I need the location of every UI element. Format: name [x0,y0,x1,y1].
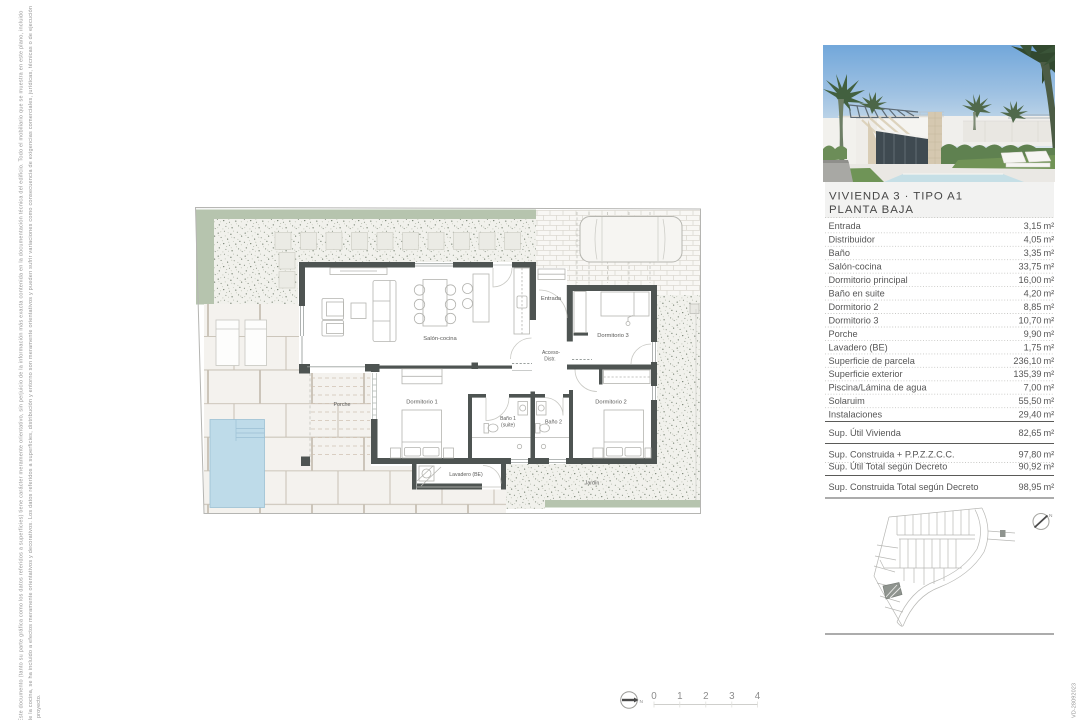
svg-text:m²: m² [1044,450,1055,460]
svg-text:de la cocina, se ha incluido a: de la cocina, se ha incluido a efectos m… [28,6,34,720]
svg-text:N: N [640,699,644,705]
svg-text:3,15: 3,15 [1024,221,1042,231]
svg-text:m²: m² [1044,315,1055,325]
svg-text:m²: m² [1044,289,1055,299]
svg-text:VD-28092023: VD-28092023 [1072,683,1078,718]
svg-text:Este documento (tanto su parte: Este documento (tanto su parte gráfica c… [19,11,25,720]
svg-text:Salón-cocina: Salón-cocina [423,336,457,342]
svg-text:Superficie de parcela: Superficie de parcela [829,356,916,366]
svg-text:Acceso-: Acceso- [542,350,560,356]
svg-text:0: 0 [651,691,657,702]
svg-text:1: 1 [677,691,682,702]
svg-text:Sup. Útil Total según Decreto: Sup. Útil Total según Decreto [829,462,948,472]
svg-text:Distr.: Distr. [544,357,555,363]
svg-text:Sup. Construida + P.P.Z.Z.C.C.: Sup. Construida + P.P.Z.Z.C.C. [829,450,955,460]
svg-text:7,00: 7,00 [1024,383,1042,393]
svg-text:Dormitorio 3: Dormitorio 3 [829,315,879,325]
svg-text:Salón-cocina: Salón-cocina [829,262,883,272]
svg-text:4: 4 [755,691,761,702]
svg-text:m²: m² [1044,302,1055,312]
svg-text:Solaruim: Solaruim [829,396,866,406]
svg-text:Jardín: Jardín [585,481,600,487]
svg-text:8,85: 8,85 [1024,302,1042,312]
svg-text:m²: m² [1044,428,1055,438]
svg-text:Dormitorio 3: Dormitorio 3 [597,333,629,339]
svg-text:VIVIENDA 3 · TIPO A1: VIVIENDA 3 · TIPO A1 [829,191,963,203]
svg-text:m²: m² [1044,342,1055,352]
svg-text:3: 3 [729,691,735,702]
svg-text:proyecto.: proyecto. [36,694,42,718]
svg-text:Dormitorio 2: Dormitorio 2 [829,302,879,312]
svg-text:Superficie exterior: Superficie exterior [829,369,903,379]
svg-text:m²: m² [1044,248,1055,258]
svg-text:Porche: Porche [333,402,350,408]
svg-text:Entrada: Entrada [829,221,862,231]
svg-text:PLANTA BAJA: PLANTA BAJA [829,204,914,216]
svg-text:m²: m² [1044,369,1055,379]
svg-text:1,75: 1,75 [1024,342,1042,352]
svg-text:Baño en suite: Baño en suite [829,289,885,299]
svg-text:m²: m² [1044,410,1055,420]
svg-text:m²: m² [1044,396,1055,406]
svg-text:236,10: 236,10 [1013,356,1041,366]
svg-text:Dormitorio principal: Dormitorio principal [829,275,908,285]
svg-text:4,20: 4,20 [1024,289,1042,299]
svg-text:m²: m² [1044,356,1055,366]
svg-text:Instalaciones: Instalaciones [829,410,883,420]
svg-text:Lavadero (BE): Lavadero (BE) [829,342,888,352]
svg-text:135,39: 135,39 [1013,369,1041,379]
svg-text:9,90: 9,90 [1024,329,1042,339]
svg-text:m²: m² [1044,329,1055,339]
svg-text:m²: m² [1044,275,1055,285]
svg-text:m²: m² [1044,235,1055,245]
svg-text:Distribuidor: Distribuidor [829,235,875,245]
svg-text:Baño: Baño [829,248,850,258]
svg-text:Entrada: Entrada [541,296,562,302]
svg-text:m²: m² [1044,221,1055,231]
svg-text:Sup. Construida Total según De: Sup. Construida Total según Decreto [829,482,979,492]
svg-text:N: N [1049,513,1053,519]
svg-text:m²: m² [1044,383,1055,393]
svg-text:m²: m² [1044,482,1055,492]
svg-text:3,35: 3,35 [1024,248,1042,258]
svg-text:Sup. Útil Vivienda: Sup. Útil Vivienda [829,428,902,438]
svg-text:97,80: 97,80 [1019,450,1042,460]
svg-text:m²: m² [1044,462,1055,472]
svg-text:Porche: Porche [829,329,858,339]
svg-text:16,00: 16,00 [1019,275,1042,285]
svg-text:10,70: 10,70 [1019,315,1042,325]
svg-text:2: 2 [703,691,708,702]
svg-text:Lavadero (BE): Lavadero (BE) [449,472,483,478]
svg-text:Piscina/Lámina de agua: Piscina/Lámina de agua [829,383,928,393]
svg-text:Baño 2: Baño 2 [545,420,562,426]
svg-text:98,95: 98,95 [1019,482,1042,492]
svg-text:90,92: 90,92 [1019,462,1042,472]
svg-text:Baño 1: Baño 1 [500,416,516,422]
svg-text:55,50: 55,50 [1019,396,1042,406]
svg-text:(suite): (suite) [501,423,515,429]
svg-text:Dormitorio 2: Dormitorio 2 [595,400,627,406]
svg-text:Dormitorio 1: Dormitorio 1 [406,400,438,406]
svg-text:m²: m² [1044,262,1055,272]
svg-text:4,05: 4,05 [1024,235,1042,245]
svg-text:33,75: 33,75 [1019,262,1042,272]
svg-text:82,65: 82,65 [1019,428,1042,438]
svg-text:29,40: 29,40 [1019,410,1042,420]
